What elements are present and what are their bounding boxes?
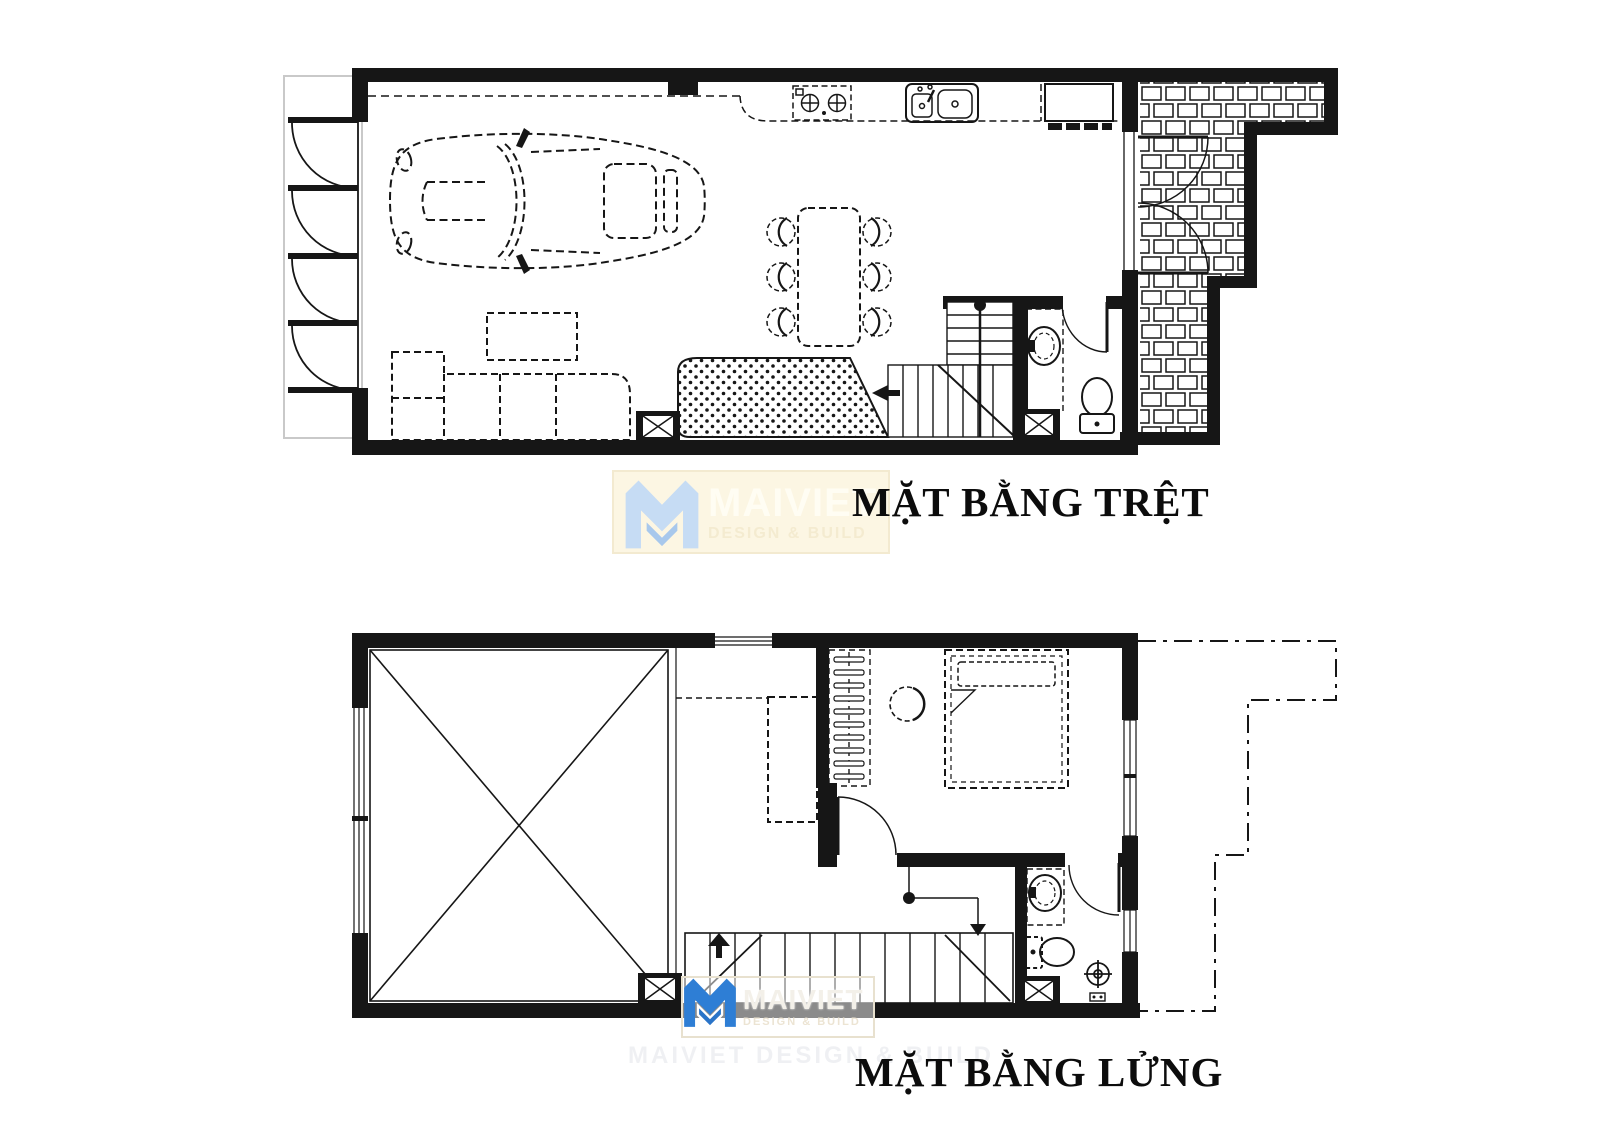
floor-plan-drawing bbox=[0, 0, 1600, 1131]
maiviet-logo-icon bbox=[681, 974, 739, 1028]
window-top bbox=[715, 637, 772, 645]
floor-drain-icon bbox=[1084, 960, 1112, 988]
toilet-icon bbox=[1025, 937, 1074, 968]
dining-chairs-icon bbox=[767, 218, 891, 336]
mezzanine-title: MẶT BẰNG LỬNG bbox=[855, 1048, 1223, 1096]
mezzanine-floor-plan bbox=[352, 633, 1336, 1018]
wardrobe-icon bbox=[829, 650, 870, 786]
watermark-tagline: DESIGN & BUILD bbox=[743, 1017, 864, 1028]
window-right bbox=[1124, 720, 1136, 952]
coffee-table-icon bbox=[487, 313, 577, 360]
watermark-top: MAIVIET DESIGN & BUILD bbox=[612, 470, 890, 554]
void-x-icon bbox=[370, 648, 676, 1003]
watermark-tagline: DESIGN & BUILD bbox=[708, 526, 877, 542]
bathroom-door-icon bbox=[1069, 863, 1119, 915]
stair-railing bbox=[903, 867, 986, 936]
rug-icon bbox=[678, 358, 888, 437]
wc-basin-icon bbox=[1028, 327, 1060, 365]
patio-opening bbox=[1124, 132, 1134, 270]
dining-table-icon bbox=[798, 208, 860, 346]
vanity-counter bbox=[1026, 309, 1063, 411]
sofa-icon bbox=[392, 352, 630, 440]
double-bed-icon bbox=[945, 650, 1068, 788]
floor-plan-sheet: MAIVIET DESIGN & BUILD MAIVIET DESIGN & … bbox=[0, 0, 1600, 1131]
stove-icon bbox=[793, 86, 851, 120]
chair-icon bbox=[890, 687, 924, 721]
car-icon bbox=[390, 128, 705, 274]
watermark-bottom: MAIVIET DESIGN & BUILD bbox=[681, 976, 875, 1038]
maiviet-logo-icon bbox=[620, 474, 704, 550]
toilet-icon bbox=[1080, 378, 1114, 433]
ground-floor-title: MẶT BẰNG TRỆT bbox=[852, 478, 1210, 526]
shower-mixer-icon bbox=[1090, 993, 1105, 1001]
bath-basin-icon bbox=[1029, 875, 1061, 911]
kitchen-sink-icon bbox=[906, 84, 978, 122]
wc-door-icon bbox=[1062, 302, 1107, 352]
desk-icon bbox=[768, 697, 817, 822]
ground-floor-plan bbox=[284, 68, 1338, 455]
bedroom-door-icon bbox=[838, 797, 896, 855]
setback-property-line bbox=[1138, 641, 1336, 1011]
folding-garage-doors-icon bbox=[288, 117, 358, 393]
staircase-icon bbox=[872, 299, 1013, 437]
fridge-icon bbox=[1045, 84, 1113, 130]
window-left bbox=[352, 703, 368, 938]
watermark-brand: MAIVIET bbox=[743, 986, 864, 1014]
